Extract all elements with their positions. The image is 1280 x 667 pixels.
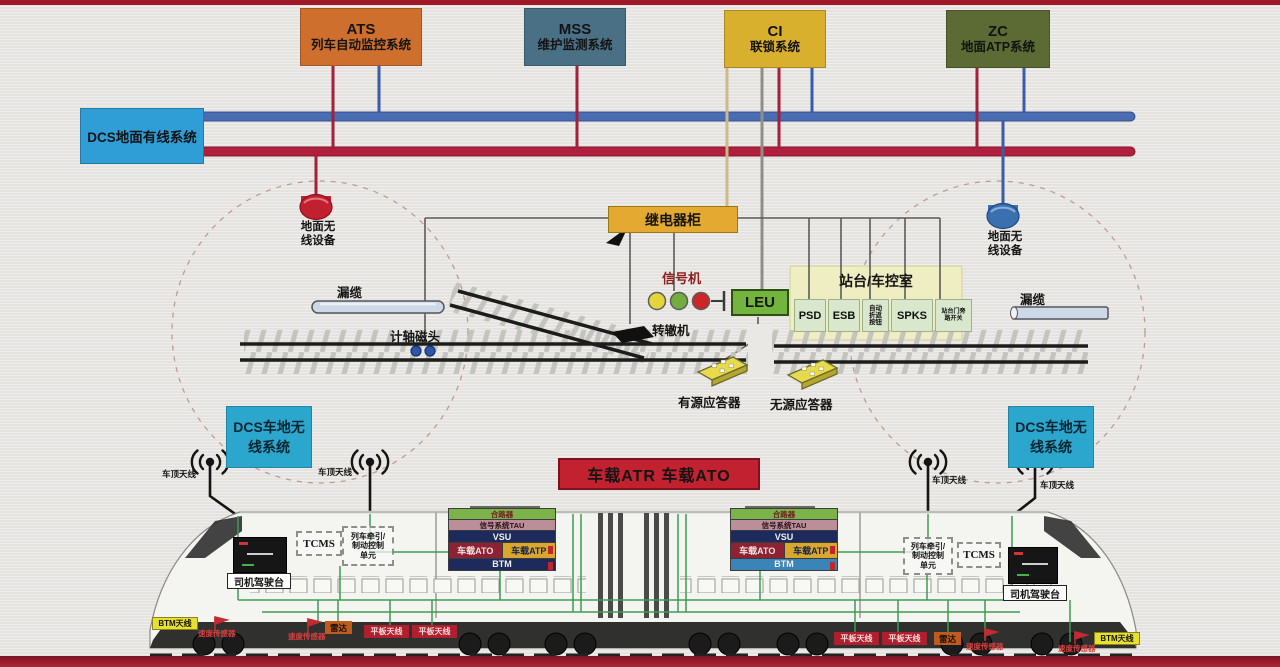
ground-wireless-right-label: 地面无 线设备 bbox=[977, 231, 1033, 259]
driver-display-right bbox=[1008, 547, 1058, 584]
tcms-right-text: TCMS bbox=[963, 549, 995, 561]
panel-ant-1-text: 平板天线 bbox=[371, 626, 403, 637]
gw-left-l1: 地面无 bbox=[301, 221, 336, 235]
active-balise-label: 有源应答器 bbox=[678, 392, 741, 411]
mss-box: MSS 维护监测系统 bbox=[524, 8, 626, 66]
panel-antenna-label-2: 平板天线 bbox=[412, 625, 457, 638]
dcs-bus-lines bbox=[200, 112, 1135, 156]
rack-left-tau: 信号系统TAU bbox=[480, 520, 525, 531]
point-machine-label: 转辙机 bbox=[652, 320, 690, 339]
auto-turnback-l2: 折返 bbox=[869, 312, 882, 319]
rack-left-combiner: 合路器 bbox=[491, 509, 514, 520]
traction-left-l3: 单元 bbox=[360, 551, 376, 561]
spks-box: SPKS bbox=[891, 299, 933, 332]
radar-left-label: 雷达 bbox=[325, 621, 352, 634]
relay-cabinet-box: 继电器柜 bbox=[608, 206, 738, 233]
traction-right-l2: 制动控制 bbox=[912, 551, 944, 561]
traction-right-box: 列车牵引/ 制动控制 单元 bbox=[903, 537, 953, 575]
station-items: PSD ESB 自动 折返 按钮 SPKS 站台门旁 路开关 bbox=[794, 299, 972, 332]
rack-left-atp: 车载ATP bbox=[511, 544, 546, 557]
speed-sensor-label-1: 速度传感器 bbox=[198, 628, 236, 639]
mss-name: 维护监测系统 bbox=[537, 38, 612, 54]
ats-box: ATS 列车自动监控系统 bbox=[300, 8, 422, 66]
station-title-text: 站台/车控室 bbox=[839, 271, 913, 291]
door-bypass-box: 站台门旁 路开关 bbox=[935, 299, 972, 332]
gw-right-l1: 地面无 bbox=[988, 231, 1023, 245]
driver-display-left bbox=[233, 537, 287, 573]
auto-turnback-box: 自动 折返 按钮 bbox=[862, 299, 889, 332]
dcs-wireless-right-box: DCS车地无 线系统 bbox=[1008, 406, 1094, 468]
dcs-wl-right-l1: DCS车地无 bbox=[1015, 417, 1087, 437]
bus-connectors bbox=[316, 66, 1024, 289]
mss-abbr: MSS bbox=[559, 21, 592, 38]
dcs-wired-label: DCS地面有线系统 bbox=[87, 126, 197, 146]
esb-label: ESB bbox=[833, 310, 856, 322]
speed-sensor-label-4: 速度传感器 bbox=[1058, 643, 1096, 654]
dcs-wireless-left-box: DCS车地无 线系统 bbox=[226, 406, 312, 468]
auto-turnback-l3: 按钮 bbox=[869, 319, 882, 326]
dcs-wl-left-l2: 线系统 bbox=[248, 437, 290, 457]
dcs-wl-left-l1: DCS车地无 bbox=[233, 417, 305, 437]
relay-cabinet-label: 继电器柜 bbox=[645, 210, 701, 230]
leaky-cable-right-icon bbox=[1011, 307, 1109, 319]
traction-left-box: 列车牵引/ 制动控制 单元 bbox=[342, 526, 394, 566]
roof-antenna-label-2: 车顶天线 bbox=[318, 466, 352, 478]
tcms-left-text: TCMS bbox=[303, 538, 335, 550]
leaky-cable-left-label: 漏缆 bbox=[337, 282, 362, 301]
onboard-banner: 车载ATR 车载ATO bbox=[558, 458, 760, 490]
ci-box: CI 联锁系统 bbox=[724, 10, 826, 68]
speed-sensor-label-3: 速度传感器 bbox=[966, 641, 1004, 652]
gw-left-l2: 线设备 bbox=[301, 235, 336, 249]
equipment-rack-left: 合路器 信号系统TAU VSU 车载ATO 车载ATP BTM bbox=[448, 508, 556, 571]
signal-label: 信号机 bbox=[662, 268, 701, 287]
roof-antenna-label-3: 车顶天线 bbox=[932, 474, 966, 486]
onboard-banner-text: 车载ATR 车载ATO bbox=[587, 462, 730, 486]
passive-balise-label: 无源应答器 bbox=[770, 394, 833, 413]
rack-right-ato: 车载ATO bbox=[739, 544, 775, 557]
leaky-cable-right-label: 漏缆 bbox=[1020, 289, 1045, 308]
driver-desk-right-text: 司机驾驶台 bbox=[1010, 586, 1060, 601]
speed-sensor-label-2: 速度传感器 bbox=[288, 631, 326, 642]
leu-label: LEU bbox=[745, 294, 775, 311]
ats-name: 列车自动监控系统 bbox=[311, 38, 411, 54]
panel-antenna-label-1: 平板天线 bbox=[364, 625, 409, 638]
traction-right-l1: 列车牵引/ bbox=[911, 542, 945, 552]
traction-left-l2: 制动控制 bbox=[352, 541, 384, 551]
zc-abbr: ZC bbox=[988, 23, 1008, 40]
roof-antenna-label-1: 车顶天线 bbox=[162, 468, 196, 480]
ground-wireless-right-icon bbox=[987, 204, 1019, 229]
frame-top bbox=[0, 0, 1280, 5]
radar-left-text: 雷达 bbox=[330, 622, 347, 634]
dcs-wired-box: DCS地面有线系统 bbox=[80, 108, 204, 164]
rack-left-ato: 车载ATO bbox=[457, 544, 493, 557]
zc-name: 地面ATP系统 bbox=[961, 40, 1035, 56]
radar-right-label: 雷达 bbox=[934, 632, 961, 645]
gw-right-l2: 线设备 bbox=[988, 245, 1023, 259]
dcs-wl-right-l2: 线系统 bbox=[1030, 437, 1072, 457]
roof-antenna-label-4: 车顶天线 bbox=[1040, 479, 1074, 491]
driver-desk-right-label: 司机驾驶台 bbox=[1003, 585, 1067, 601]
psd-box: PSD bbox=[794, 299, 826, 332]
ats-abbr: ATS bbox=[347, 21, 376, 38]
traction-right-l3: 单元 bbox=[920, 561, 936, 571]
panel-ant-4-text: 平板天线 bbox=[889, 633, 921, 644]
auto-turnback-l1: 自动 bbox=[869, 305, 882, 312]
spks-label: SPKS bbox=[897, 310, 927, 322]
frame-bottom bbox=[0, 656, 1280, 667]
diagram-canvas: ATS 列车自动监控系统 MSS 维护监测系统 CI 联锁系统 ZC 地面ATP… bbox=[0, 0, 1280, 667]
station-title: 站台/车控室 bbox=[790, 271, 962, 291]
rack-right-atp: 车载ATP bbox=[793, 544, 828, 557]
panel-ant-3-text: 平板天线 bbox=[841, 633, 873, 644]
radar-right-text: 雷达 bbox=[939, 633, 956, 645]
tcms-left-box: TCMS bbox=[296, 531, 342, 556]
ground-wireless-left-label: 地面无 线设备 bbox=[290, 221, 346, 249]
traction-left-l1: 列车牵引/ bbox=[351, 532, 385, 542]
rack-right-tau: 信号系统TAU bbox=[762, 520, 807, 531]
panel-antenna-label-4: 平板天线 bbox=[882, 632, 927, 645]
door-bypass-l2: 路开关 bbox=[944, 316, 962, 323]
driver-desk-left-text: 司机驾驶台 bbox=[234, 574, 284, 589]
psd-label: PSD bbox=[799, 310, 822, 322]
door-bypass-l1: 站台门旁 bbox=[941, 309, 965, 316]
rack-left-btm: BTM bbox=[492, 559, 512, 569]
esb-box: ESB bbox=[828, 299, 860, 332]
ci-name: 联锁系统 bbox=[750, 40, 800, 56]
signal-icon bbox=[649, 291, 725, 311]
panel-antenna-label-3: 平板天线 bbox=[834, 632, 879, 645]
btm-ant-right-text: BTM天线 bbox=[1100, 633, 1133, 644]
diagram-artwork bbox=[0, 0, 1280, 667]
tcms-right-box: TCMS bbox=[957, 542, 1001, 568]
leaky-cable-left-icon bbox=[312, 301, 444, 313]
driver-desk-left-label: 司机驾驶台 bbox=[227, 573, 291, 589]
btm-ant-left-text: BTM天线 bbox=[158, 618, 191, 629]
axle-counter-label: 计轴磁头 bbox=[390, 326, 440, 345]
leu-box: LEU bbox=[731, 289, 789, 316]
ground-wireless-left-icon bbox=[300, 195, 332, 220]
panel-ant-2-text: 平板天线 bbox=[419, 626, 451, 637]
equipment-rack-right: 合路器 信号系统TAU VSU 车载ATO 车载ATP BTM bbox=[730, 508, 838, 571]
rack-right-vsu: VSU bbox=[775, 532, 794, 542]
rack-left-vsu: VSU bbox=[493, 532, 512, 542]
btm-antenna-left-label: BTM天线 bbox=[152, 617, 198, 630]
zc-box: ZC 地面ATP系统 bbox=[946, 10, 1050, 68]
ci-abbr: CI bbox=[768, 23, 783, 40]
btm-antenna-right-label: BTM天线 bbox=[1094, 632, 1140, 645]
rack-right-btm: BTM bbox=[774, 559, 794, 569]
rack-right-combiner: 合路器 bbox=[773, 509, 796, 520]
